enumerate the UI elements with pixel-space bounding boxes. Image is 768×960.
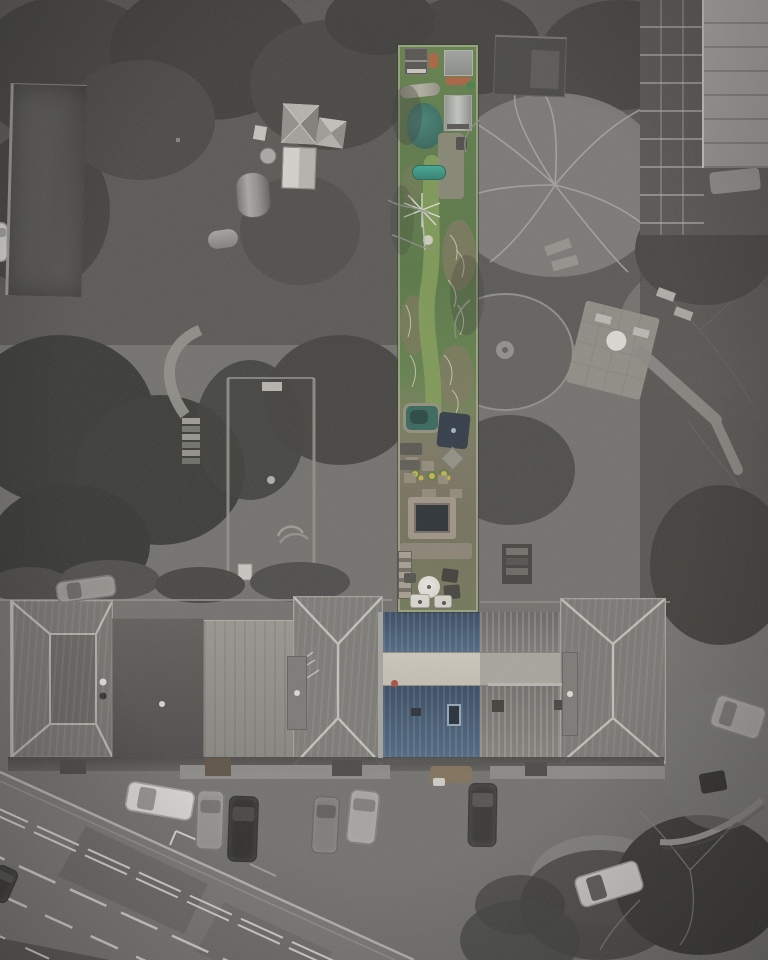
party-wall-parapet: [378, 612, 383, 758]
scaffolding: [640, 0, 704, 235]
highlighted-blue-roof: [383, 612, 480, 762]
small-bush: [466, 81, 475, 90]
flat-roof-building: [5, 83, 87, 297]
light-roof-section: [204, 620, 293, 758]
dark-chair: [441, 568, 459, 583]
teal-garden-bench: [412, 165, 446, 180]
red-chimney-pot: [391, 680, 398, 687]
lawn-path: [427, 163, 434, 417]
porch-step: [332, 760, 362, 776]
roof-texture: [10, 600, 113, 758]
building-under-construction: [702, 0, 768, 168]
road: [0, 772, 414, 960]
barrel-greenhouse: [234, 171, 271, 219]
skylight-window: [447, 704, 461, 726]
conifer-cluster-left: [0, 335, 305, 605]
porch-step: [525, 762, 547, 776]
roof-vent-box: [411, 708, 421, 716]
white-greenhouse: [281, 146, 316, 189]
white-patio-unit: [434, 595, 452, 608]
blue-roof-slope-upper: [383, 612, 480, 652]
chimney-stack-right: [562, 652, 578, 736]
parasol-table-set: [436, 411, 470, 449]
front-pavement: [490, 766, 665, 779]
square-pond: [408, 497, 456, 539]
covered-pond: [403, 403, 441, 433]
tree-shadow: [392, 85, 422, 145]
roof-pipe: [488, 683, 572, 686]
aerial-photo: [0, 0, 768, 960]
roof-vent: [159, 701, 165, 707]
storage-box: [400, 443, 422, 455]
tree-shadow: [390, 185, 414, 255]
dark-pitched-roof: [112, 618, 204, 758]
shed-roof-panel: [530, 50, 559, 89]
storage-box: [400, 460, 420, 470]
blue-roof-slope-lower: [383, 686, 480, 758]
orange-storage-box: [429, 53, 438, 68]
steps-behind-house: [502, 544, 532, 584]
neighbour-shed: [493, 35, 567, 97]
grey-flat-shed: [444, 50, 473, 76]
highlighted-garden-strip: [398, 45, 478, 612]
white-patio-unit: [410, 594, 430, 608]
white-sack: [433, 778, 445, 786]
canopy-shelter: [444, 95, 472, 131]
garden-shed: [404, 48, 428, 75]
tree-shadow: [450, 255, 484, 335]
hip-roof-pavilion-left: [10, 600, 113, 758]
dark-chair: [404, 573, 416, 583]
chimney-stack: [287, 656, 307, 730]
garden-bin: [456, 137, 467, 150]
roof-vent: [492, 700, 504, 712]
raised-beds: [176, 138, 234, 226]
raised-bed: [176, 138, 180, 142]
gazebo-pyramid-roof-small: [315, 117, 347, 149]
gazebo-pyramid-roof: [281, 103, 319, 145]
porch-step: [205, 758, 231, 776]
porch-step: [60, 760, 86, 774]
